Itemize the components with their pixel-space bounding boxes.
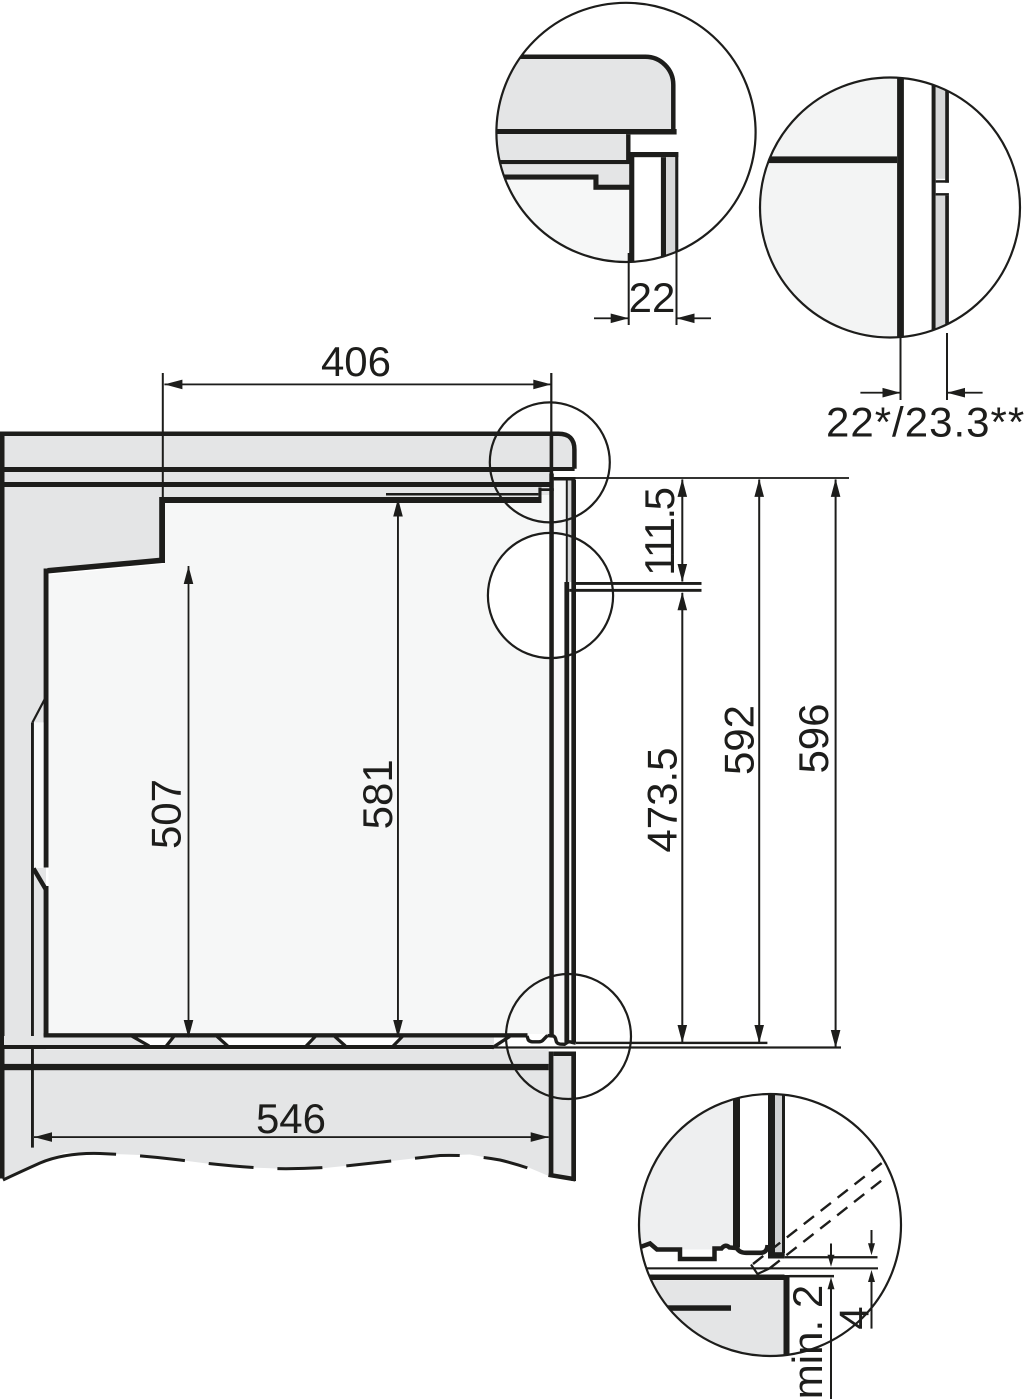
- svg-text:596: 596: [790, 703, 837, 773]
- svg-text:4: 4: [831, 1306, 878, 1329]
- svg-text:22*/23.3**: 22*/23.3**: [826, 399, 1025, 446]
- svg-text:581: 581: [354, 759, 401, 829]
- svg-text:592: 592: [716, 705, 763, 775]
- svg-text:406: 406: [321, 338, 391, 385]
- svg-text:473.5: 473.5: [639, 747, 686, 852]
- svg-text:min. 2: min. 2: [784, 1285, 831, 1399]
- svg-text:546: 546: [256, 1095, 326, 1142]
- svg-text:111.5: 111.5: [636, 488, 683, 576]
- svg-text:507: 507: [143, 779, 190, 849]
- svg-text:22: 22: [629, 274, 676, 321]
